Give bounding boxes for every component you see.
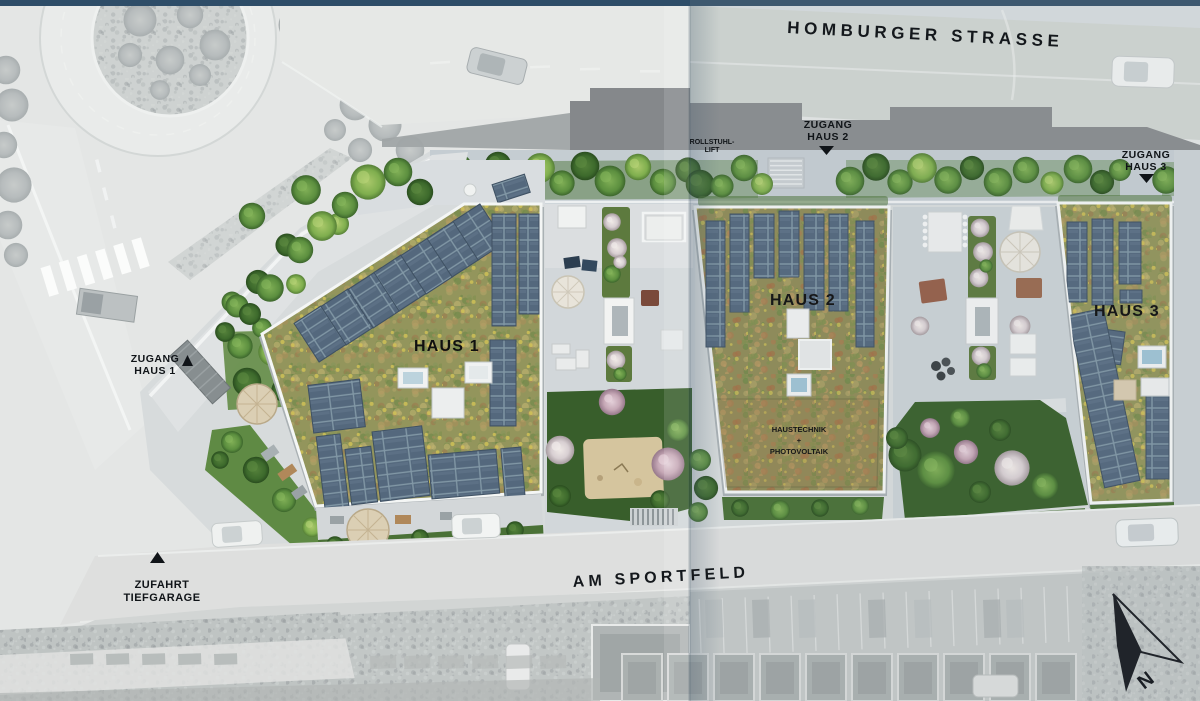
svg-text:LIFT: LIFT [705, 147, 720, 154]
svg-text:ZUGANG: ZUGANG [1122, 149, 1171, 161]
svg-text:HAUS 1: HAUS 1 [414, 338, 480, 355]
svg-text:ROLLSTUHL-: ROLLSTUHL- [690, 139, 735, 146]
svg-text:ZUFAHRT: ZUFAHRT [135, 579, 190, 591]
svg-text:TIEFGARAGE: TIEFGARAGE [123, 592, 200, 604]
svg-text:ZUGANG: ZUGANG [131, 353, 180, 365]
svg-text:HAUS 1: HAUS 1 [134, 365, 176, 377]
svg-text:HAUS 2: HAUS 2 [807, 131, 849, 143]
svg-text:HAUS 3: HAUS 3 [1125, 161, 1167, 173]
svg-text:ZUGANG: ZUGANG [804, 119, 853, 131]
